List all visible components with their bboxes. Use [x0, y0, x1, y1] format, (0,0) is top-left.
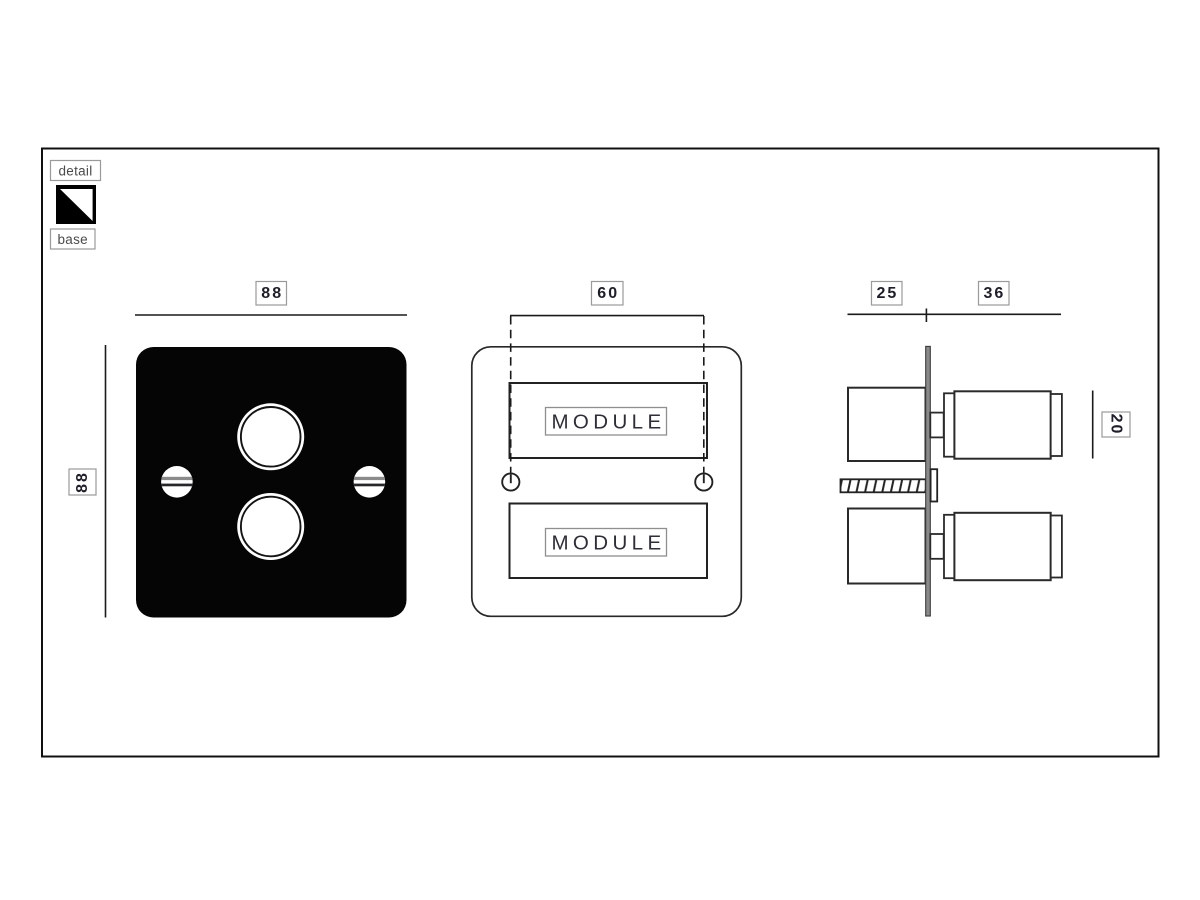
svg-text:detail: detail [58, 164, 92, 179]
svg-text:base: base [57, 232, 87, 247]
svg-text:MODULE: MODULE [551, 532, 665, 555]
svg-text:60: 60 [597, 285, 619, 302]
svg-text:88: 88 [74, 471, 91, 493]
svg-text:25: 25 [877, 285, 899, 302]
svg-text:88: 88 [261, 285, 283, 302]
svg-text:36: 36 [984, 285, 1006, 302]
svg-text:20: 20 [1108, 414, 1125, 436]
svg-text:MODULE: MODULE [551, 411, 665, 434]
